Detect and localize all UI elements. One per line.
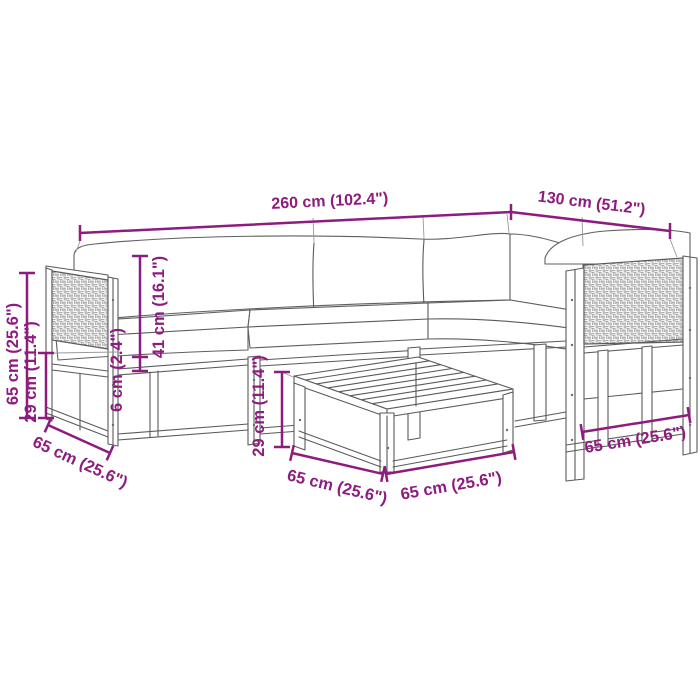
seat-frame-height-label: 29 cm (11.4"): [22, 321, 40, 422]
right-section-width-label: 130 cm (51.2"): [537, 189, 646, 219]
total-width-label: 260 cm (102.4"): [271, 190, 389, 213]
sofa-set-line-drawing: 260 cm (102.4") 130 cm (51.2") 65 cm (25…: [0, 0, 700, 700]
cushion-thickness-label: 6 cm (2.4"): [108, 328, 126, 412]
table-width-label: 65 cm (25.6"): [399, 468, 503, 503]
coffee-table: [294, 357, 513, 472]
product-dimension-diagram: 260 cm (102.4") 130 cm (51.2") 65 cm (25…: [0, 0, 700, 700]
table-height-label: 29 cm (11.4"): [250, 355, 268, 456]
backrest-height-label: 41 cm (16.1"): [150, 256, 168, 358]
overall-height-label: 65 cm (25.6"): [4, 303, 22, 405]
